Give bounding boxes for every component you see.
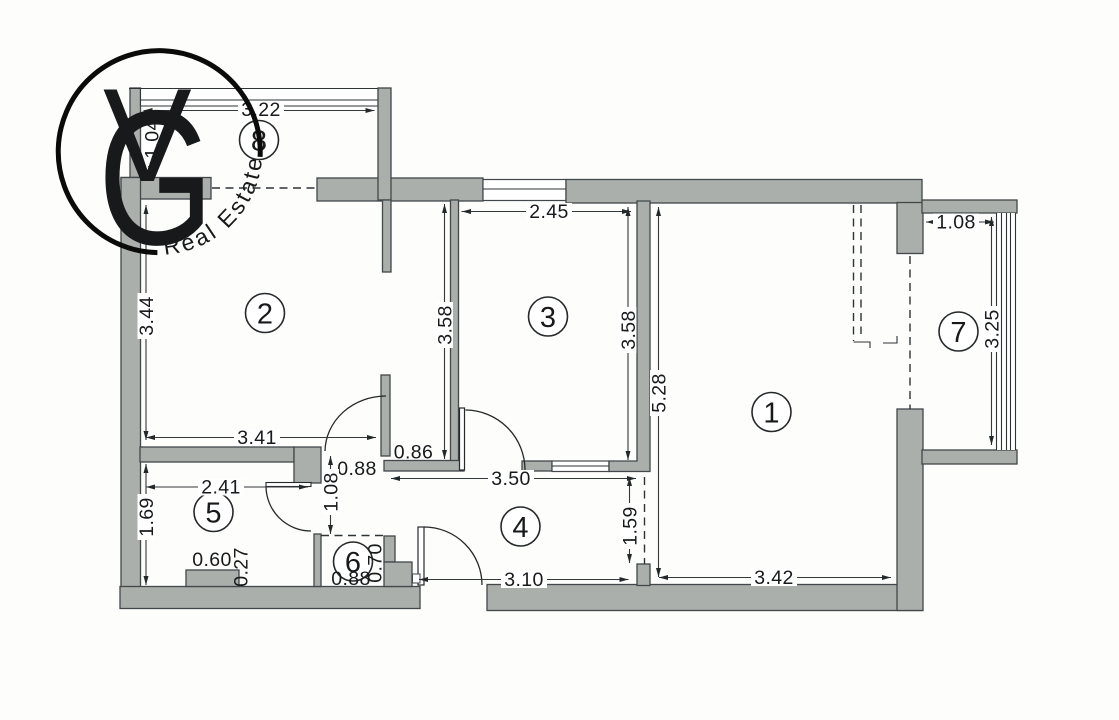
svg-text:3.10: 3.10 [504, 569, 544, 591]
svg-text:3.41: 3.41 [237, 427, 277, 449]
svg-text:1: 1 [763, 398, 779, 430]
svg-text:1.08: 1.08 [936, 212, 976, 234]
svg-text:3.25: 3.25 [982, 309, 1004, 349]
svg-text:7: 7 [950, 317, 966, 349]
svg-text:2.41: 2.41 [201, 477, 241, 499]
svg-text:0.88: 0.88 [331, 568, 371, 590]
svg-text:5: 5 [205, 498, 221, 530]
svg-text:3: 3 [540, 302, 556, 334]
svg-text:3.44: 3.44 [136, 296, 158, 336]
svg-text:3.50: 3.50 [491, 468, 531, 490]
svg-text:1.59: 1.59 [620, 506, 642, 546]
svg-text:0.27: 0.27 [231, 547, 253, 587]
svg-text:0.86: 0.86 [394, 442, 434, 464]
svg-text:3.42: 3.42 [754, 567, 794, 589]
svg-text:0.60: 0.60 [192, 549, 232, 571]
svg-text:G: G [98, 71, 214, 286]
svg-text:2: 2 [257, 299, 273, 331]
svg-text:3.58: 3.58 [435, 305, 457, 345]
svg-text:2.45: 2.45 [529, 201, 569, 223]
svg-text:4: 4 [512, 512, 528, 544]
svg-text:3.58: 3.58 [618, 310, 640, 350]
svg-text:1.08: 1.08 [321, 472, 343, 512]
svg-text:5.28: 5.28 [649, 373, 671, 413]
svg-text:0.88: 0.88 [337, 458, 377, 480]
svg-text:1.69: 1.69 [136, 497, 158, 537]
